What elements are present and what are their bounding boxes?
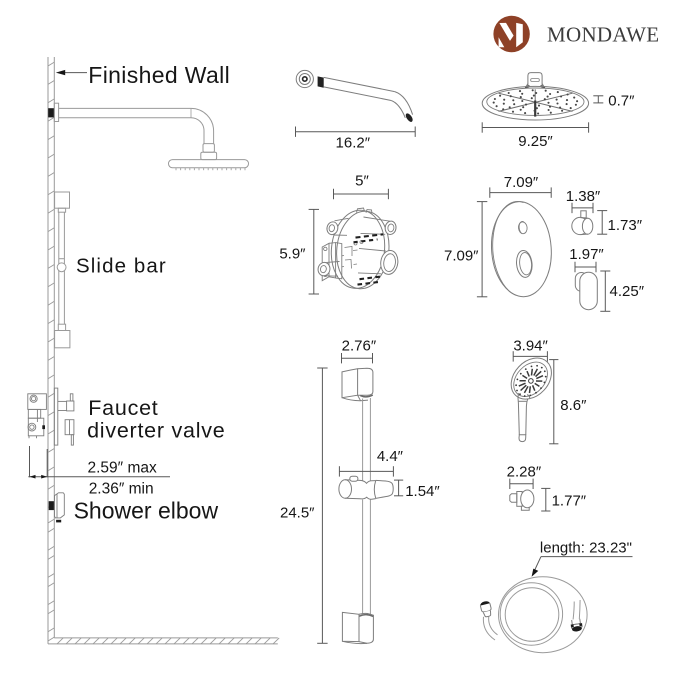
svg-text:1.54″: 1.54″: [405, 483, 440, 500]
svg-text:3.94″: 3.94″: [513, 337, 548, 354]
svg-text:Slide bar: Slide bar: [76, 255, 167, 278]
svg-text:7.09″: 7.09″: [504, 174, 539, 191]
svg-text:1.97″: 1.97″: [569, 246, 604, 263]
svg-text:2.76″: 2.76″: [342, 338, 377, 355]
svg-text:1.77″: 1.77″: [552, 492, 587, 509]
svg-text:9.25″: 9.25″: [518, 133, 553, 150]
svg-text:4.4″: 4.4″: [377, 448, 404, 465]
svg-text:7.09″: 7.09″: [444, 247, 479, 264]
svg-text:5″: 5″: [355, 172, 369, 189]
svg-text:2.59″ max: 2.59″ max: [88, 459, 157, 476]
svg-text:1.73″: 1.73″: [608, 217, 643, 234]
svg-text:8.6″: 8.6″: [560, 397, 587, 414]
svg-text:0.7″: 0.7″: [608, 93, 635, 110]
svg-text:16.2″: 16.2″: [336, 135, 371, 152]
svg-text:4.25″: 4.25″: [610, 283, 645, 300]
svg-text:diverter valve: diverter valve: [87, 418, 225, 442]
svg-text:length: 23.23": length: 23.23": [540, 540, 632, 557]
svg-text:2.28″: 2.28″: [507, 463, 542, 480]
svg-text:5.9″: 5.9″: [279, 246, 306, 263]
svg-text:24.5″: 24.5″: [280, 504, 315, 521]
svg-text:Faucet: Faucet: [88, 396, 158, 420]
svg-text:1.38″: 1.38″: [566, 188, 601, 205]
svg-text:MONDAWE: MONDAWE: [547, 23, 659, 47]
svg-text:Finished Wall: Finished Wall: [88, 62, 230, 88]
svg-text:2.36″ min: 2.36″ min: [89, 481, 154, 498]
svg-text:Shower elbow: Shower elbow: [74, 498, 219, 524]
